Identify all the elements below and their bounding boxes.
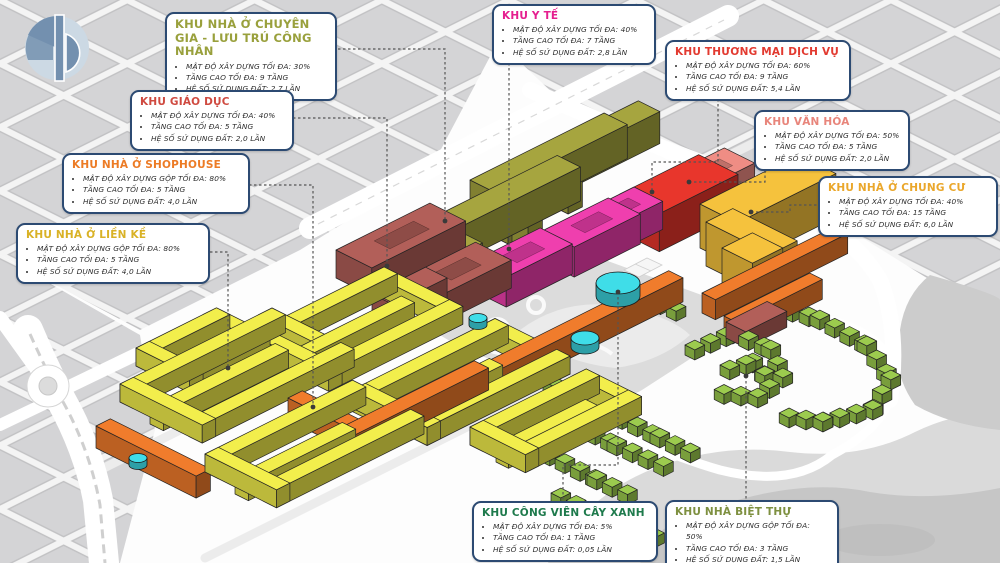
callout-khu-thuong-mai-dich-vu: KHU THƯƠNG MẠI DỊCH VỤ MẬT ĐỘ XÂY DỰNG T… (665, 40, 851, 101)
callout-title: KHU NHÀ Ở CHUYÊN GIA - LƯU TRÚ CÔNG NHÂN (175, 18, 327, 59)
callout-specs: MẬT ĐỘ XÂY DỰNG GỘP TỐI ĐA: 50% TẦNG CAO… (675, 520, 829, 563)
callout-khu-giao-duc: KHU GIÁO DỤC MẬT ĐỘ XÂY DỰNG TỐI ĐA: 40%… (130, 90, 294, 151)
callout-khu-van-hoa: KHU VĂN HÓA MẬT ĐỘ XÂY DỰNG TỐI ĐA: 50% … (754, 110, 910, 171)
callout-title: KHU NHÀ Ở CHUNG CƯ (828, 182, 988, 194)
callout-title: KHU NHÀ Ở LIỀN KỀ (26, 229, 200, 241)
callout-specs: MẬT ĐỘ XÂY DỰNG TỐI ĐA: 40% TẦNG CAO TỐI… (140, 110, 284, 143)
callout-title: KHU GIÁO DỤC (140, 96, 284, 108)
logo-left-shape (26, 34, 53, 60)
company-logo (12, 4, 92, 88)
callout-specs: MẬT ĐỘ XÂY DỰNG GỘP TỐI ĐA: 80% TẦNG CAO… (72, 173, 240, 206)
callout-title: KHU THƯƠNG MẠI DỊCH VỤ (675, 46, 841, 58)
callout-specs: MẬT ĐỘ XÂY DỰNG TỐI ĐA: 60% TẦNG CAO TỐI… (675, 60, 841, 93)
callout-title: KHU Y TẾ (502, 10, 646, 22)
roundabout (27, 365, 69, 407)
callout-title: KHU VĂN HÓA (764, 116, 900, 128)
callout-title: KHU NHÀ BIỆT THỰ (675, 506, 829, 518)
callout-khu-nha-o-chuyen-gia: KHU NHÀ Ở CHUYÊN GIA - LƯU TRÚ CÔNG NHÂN… (165, 12, 337, 101)
callout-specs: MẬT ĐỘ XÂY DỰNG TỐI ĐA: 50% TẦNG CAO TỐI… (764, 130, 900, 163)
callout-specs: MẬT ĐỘ XÂY DỰNG TỐI ĐA: 40% TẦNG CAO TỐI… (502, 24, 646, 57)
callout-khu-nha-o-shophouse: KHU NHÀ Ở SHOPHOUSE MẬT ĐỘ XÂY DỰNG GỘP … (62, 153, 250, 214)
callout-khu-nha-o-chung-cu: KHU NHÀ Ở CHUNG CƯ MẬT ĐỘ XÂY DỰNG TỐI Đ… (818, 176, 998, 237)
callout-title: KHU NHÀ Ở SHOPHOUSE (72, 159, 240, 171)
masterplan-infographic: KHU NHÀ Ở CHUYÊN GIA - LƯU TRÚ CÔNG NHÂN… (0, 0, 1000, 563)
callout-title: KHU CÔNG VIÊN CÂY XANH (482, 507, 648, 519)
callout-khu-nha-o-lien-ke: KHU NHÀ Ở LIỀN KỀ MẬT ĐỘ XÂY DỰNG GỘP TỐ… (16, 223, 210, 284)
callout-khu-cong-vien-cay-xanh: KHU CÔNG VIÊN CÂY XANH MẬT ĐỘ XÂY DỰNG T… (472, 501, 658, 562)
callout-specs: MẬT ĐỘ XÂY DỰNG TỐI ĐA: 5% TẦNG CAO TỐI … (482, 521, 648, 554)
callout-specs: MẬT ĐỘ XÂY DỰNG TỐI ĐA: 40% TẦNG CAO TỐI… (828, 196, 988, 229)
callout-specs: MẬT ĐỘ XÂY DỰNG GỘP TỐI ĐA: 80% TẦNG CAO… (26, 243, 200, 276)
callout-khu-y-te: KHU Y TẾ MẬT ĐỘ XÂY DỰNG TỐI ĐA: 40% TẦN… (492, 4, 656, 65)
logo-bar (55, 15, 64, 81)
callout-khu-nha-biet-thu: KHU NHÀ BIỆT THỰ MẬT ĐỘ XÂY DỰNG GỘP TỐI… (665, 500, 839, 563)
